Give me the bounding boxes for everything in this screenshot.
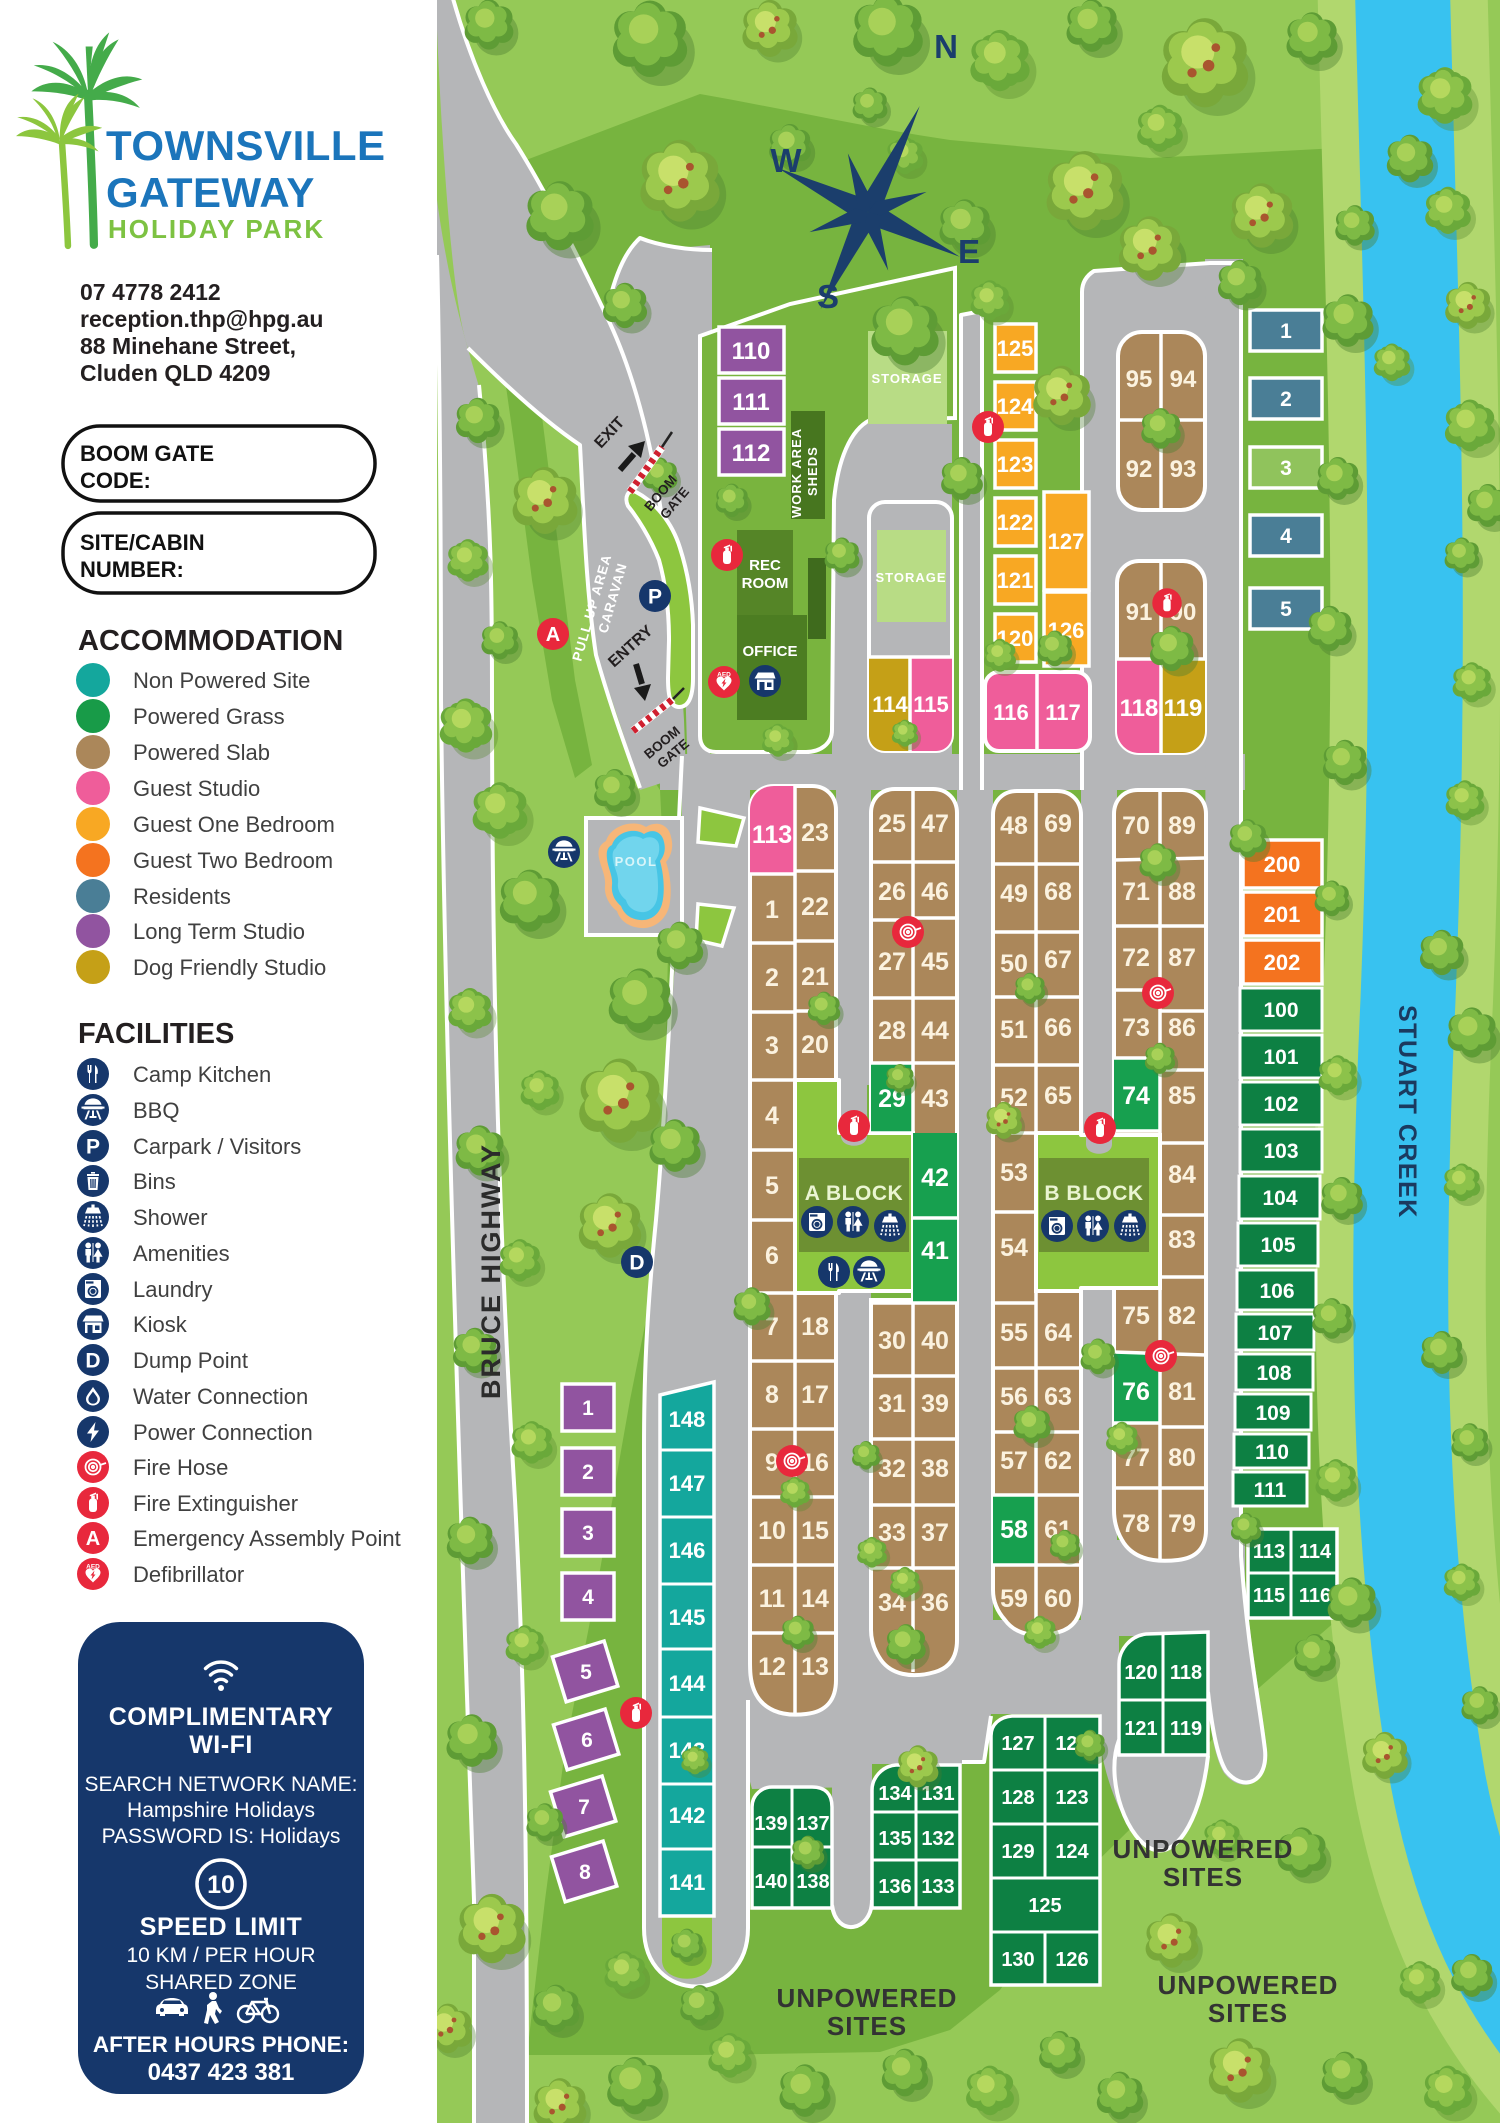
svg-text:10 KM / PER HOUR: 10 KM / PER HOUR <box>126 1944 315 1967</box>
svg-text:3: 3 <box>582 1522 594 1545</box>
svg-text:104: 104 <box>1262 1187 1297 1210</box>
svg-text:18: 18 <box>801 1313 829 1341</box>
svg-text:93: 93 <box>1170 456 1197 483</box>
svg-text:ROOM: ROOM <box>742 575 789 592</box>
svg-text:111: 111 <box>1254 1479 1287 1502</box>
svg-text:82: 82 <box>1168 1302 1196 1330</box>
svg-text:60: 60 <box>1044 1585 1072 1613</box>
svg-text:108: 108 <box>1256 1362 1291 1385</box>
svg-text:15: 15 <box>801 1517 829 1545</box>
svg-text:148: 148 <box>669 1407 706 1432</box>
svg-text:Laundry: Laundry <box>133 1277 213 1302</box>
svg-text:105: 105 <box>1260 1234 1295 1257</box>
svg-text:140: 140 <box>754 1871 787 1893</box>
svg-text:135: 135 <box>878 1828 911 1850</box>
svg-text:43: 43 <box>921 1085 949 1113</box>
svg-text:8: 8 <box>579 1861 591 1884</box>
svg-text:81: 81 <box>1168 1378 1196 1406</box>
svg-text:147: 147 <box>669 1471 706 1496</box>
svg-text:136: 136 <box>878 1876 911 1898</box>
svg-text:Hampshire Holidays: Hampshire Holidays <box>127 1799 315 1822</box>
svg-text:SITES: SITES <box>1208 1998 1288 2028</box>
svg-text:POOL: POOL <box>615 854 658 869</box>
svg-text:76: 76 <box>1122 1378 1150 1406</box>
svg-text:SITES: SITES <box>1163 1862 1243 1892</box>
svg-text:132: 132 <box>921 1828 954 1850</box>
svg-text:Fire Hose: Fire Hose <box>133 1455 228 1480</box>
svg-text:SPEED LIMIT: SPEED LIMIT <box>140 1913 302 1941</box>
svg-text:114: 114 <box>1299 1541 1332 1563</box>
svg-text:STORAGE: STORAGE <box>875 570 946 585</box>
svg-text:14: 14 <box>801 1585 829 1613</box>
svg-text:Emergency Assembly Point: Emergency Assembly Point <box>133 1526 401 1551</box>
svg-text:103: 103 <box>1263 1140 1298 1163</box>
svg-text:GATEWAY: GATEWAY <box>106 169 315 216</box>
svg-text:55: 55 <box>1000 1319 1028 1347</box>
svg-text:114: 114 <box>872 692 908 717</box>
svg-text:22: 22 <box>801 893 829 921</box>
svg-text:CODE:: CODE: <box>80 468 151 493</box>
svg-text:Kiosk: Kiosk <box>133 1312 188 1337</box>
svg-text:121: 121 <box>1124 1718 1157 1740</box>
svg-text:115: 115 <box>913 692 949 717</box>
svg-text:111: 111 <box>732 389 769 416</box>
svg-text:37: 37 <box>921 1519 949 1547</box>
svg-text:47: 47 <box>921 810 949 838</box>
svg-text:79: 79 <box>1168 1510 1196 1538</box>
svg-text:AFTER HOURS PHONE:: AFTER HOURS PHONE: <box>93 2032 349 2057</box>
svg-text:100: 100 <box>1263 999 1298 1022</box>
svg-text:Dump Point: Dump Point <box>133 1348 248 1373</box>
svg-text:63: 63 <box>1044 1383 1072 1411</box>
svg-text:49: 49 <box>1000 880 1028 908</box>
svg-text:116: 116 <box>1299 1585 1331 1607</box>
svg-text:UNPOWERED: UNPOWERED <box>777 1983 958 2013</box>
svg-text:31: 31 <box>878 1390 906 1418</box>
svg-text:127: 127 <box>1001 1733 1034 1755</box>
svg-text:UNPOWERED: UNPOWERED <box>1113 1834 1294 1864</box>
svg-text:145: 145 <box>669 1605 706 1630</box>
svg-text:Residents: Residents <box>133 884 231 909</box>
svg-text:reception.thp@hpg.au: reception.thp@hpg.au <box>80 306 323 332</box>
svg-text:4: 4 <box>1280 525 1292 548</box>
svg-text:SEARCH NETWORK NAME:: SEARCH NETWORK NAME: <box>84 1773 357 1796</box>
svg-text:Guest One Bedroom: Guest One Bedroom <box>133 812 335 837</box>
svg-text:122: 122 <box>997 510 1034 535</box>
svg-text:2: 2 <box>582 1461 594 1484</box>
svg-text:126: 126 <box>1055 1949 1088 1971</box>
svg-text:25: 25 <box>878 810 906 838</box>
svg-text:68: 68 <box>1044 878 1072 906</box>
svg-text:7: 7 <box>578 1796 590 1819</box>
svg-text:Defibrillator: Defibrillator <box>133 1562 244 1587</box>
svg-text:202: 202 <box>1264 950 1301 975</box>
svg-text:142: 142 <box>669 1803 706 1828</box>
svg-text:89: 89 <box>1168 812 1196 840</box>
svg-text:38: 38 <box>921 1455 949 1483</box>
svg-text:30: 30 <box>878 1327 906 1355</box>
svg-text:118: 118 <box>1120 695 1159 722</box>
svg-text:129: 129 <box>1001 1841 1034 1863</box>
svg-text:2: 2 <box>1280 388 1292 411</box>
svg-text:92: 92 <box>1126 456 1153 483</box>
svg-text:119: 119 <box>1164 695 1203 722</box>
svg-text:Fire Extinguisher: Fire Extinguisher <box>133 1491 298 1516</box>
svg-text:HOLIDAY PARK: HOLIDAY PARK <box>108 214 325 244</box>
svg-text:42: 42 <box>921 1164 949 1192</box>
svg-text:4: 4 <box>582 1586 594 1609</box>
svg-text:B BLOCK: B BLOCK <box>1044 1182 1143 1205</box>
svg-text:STORAGE: STORAGE <box>871 371 942 386</box>
svg-text:11: 11 <box>759 1585 786 1613</box>
svg-text:46: 46 <box>921 878 949 906</box>
svg-text:41: 41 <box>921 1237 949 1265</box>
svg-text:36: 36 <box>921 1589 949 1617</box>
svg-text:8: 8 <box>765 1381 779 1409</box>
svg-text:130: 130 <box>1001 1949 1034 1971</box>
svg-text:Long Term Studio: Long Term Studio <box>133 919 305 944</box>
svg-text:Amenities: Amenities <box>133 1241 230 1266</box>
svg-text:1: 1 <box>1280 320 1292 343</box>
svg-text:127: 127 <box>1048 529 1085 554</box>
svg-text:4: 4 <box>765 1102 779 1130</box>
svg-text:58: 58 <box>1000 1516 1028 1544</box>
svg-text:1: 1 <box>765 896 779 924</box>
svg-text:17: 17 <box>801 1381 829 1409</box>
svg-text:23: 23 <box>801 819 829 847</box>
svg-text:65: 65 <box>1044 1082 1072 1110</box>
svg-text:67: 67 <box>1044 946 1072 974</box>
svg-text:3: 3 <box>1280 457 1292 480</box>
svg-text:SITES: SITES <box>827 2011 907 2041</box>
svg-text:66: 66 <box>1044 1014 1072 1042</box>
svg-text:STUART CREEK: STUART CREEK <box>1393 1005 1421 1219</box>
svg-text:51: 51 <box>1000 1016 1028 1044</box>
svg-text:116: 116 <box>993 700 1029 725</box>
svg-text:78: 78 <box>1122 1510 1150 1538</box>
svg-text:Cluden QLD 4209: Cluden QLD 4209 <box>80 360 270 386</box>
svg-text:134: 134 <box>878 1783 912 1805</box>
svg-text:2: 2 <box>765 964 779 992</box>
svg-text:139: 139 <box>754 1813 787 1835</box>
svg-text:69: 69 <box>1044 810 1072 838</box>
svg-text:28: 28 <box>878 1017 906 1045</box>
svg-text:WI-FI: WI-FI <box>189 1731 253 1759</box>
svg-text:133: 133 <box>921 1876 954 1898</box>
svg-text:40: 40 <box>921 1327 949 1355</box>
svg-text:S: S <box>817 278 839 315</box>
svg-text:141: 141 <box>669 1870 706 1895</box>
svg-text:62: 62 <box>1044 1447 1072 1475</box>
svg-text:119: 119 <box>1170 1718 1202 1740</box>
svg-text:123: 123 <box>1055 1787 1088 1809</box>
svg-text:121: 121 <box>997 568 1034 593</box>
svg-text:95: 95 <box>1126 366 1153 393</box>
svg-text:128: 128 <box>1001 1787 1034 1809</box>
svg-text:56: 56 <box>1000 1383 1028 1411</box>
svg-text:101: 101 <box>1263 1046 1298 1069</box>
svg-text:10: 10 <box>207 1871 235 1899</box>
svg-text:200: 200 <box>1264 852 1301 877</box>
svg-text:54: 54 <box>1000 1234 1028 1262</box>
svg-text:125: 125 <box>1028 1895 1061 1917</box>
svg-text:112: 112 <box>732 440 771 467</box>
svg-text:E: E <box>958 233 980 270</box>
svg-text:A BLOCK: A BLOCK <box>805 1182 903 1205</box>
svg-text:70: 70 <box>1122 812 1150 840</box>
svg-text:TOWNSVILLE: TOWNSVILLE <box>106 122 386 169</box>
svg-text:BOOM GATE: BOOM GATE <box>80 441 214 466</box>
svg-text:Guest Studio: Guest Studio <box>133 776 260 801</box>
svg-text:91: 91 <box>1126 599 1153 626</box>
svg-text:72: 72 <box>1122 944 1150 972</box>
svg-text:Dog Friendly Studio: Dog Friendly Studio <box>133 955 326 980</box>
svg-text:137: 137 <box>796 1813 829 1835</box>
svg-text:5: 5 <box>580 1661 592 1684</box>
svg-text:COMPLIMENTARY: COMPLIMENTARY <box>109 1703 334 1731</box>
svg-text:94: 94 <box>1170 366 1197 393</box>
svg-text:3: 3 <box>765 1032 779 1060</box>
svg-text:87: 87 <box>1168 944 1196 972</box>
svg-text:50: 50 <box>1000 950 1028 978</box>
svg-text:NUMBER:: NUMBER: <box>80 557 184 582</box>
svg-text:107: 107 <box>1257 1322 1292 1345</box>
svg-text:Carpark / Visitors: Carpark / Visitors <box>133 1134 301 1159</box>
svg-text:Camp Kitchen: Camp Kitchen <box>133 1062 271 1087</box>
svg-text:39: 39 <box>921 1390 949 1418</box>
svg-text:FACILITIES: FACILITIES <box>78 1018 234 1050</box>
svg-text:SHARED ZONE: SHARED ZONE <box>145 1971 297 1994</box>
svg-text:07 4778 2412: 07 4778 2412 <box>80 279 221 305</box>
svg-text:75: 75 <box>1122 1302 1150 1330</box>
svg-text:144: 144 <box>669 1671 706 1696</box>
svg-text:84: 84 <box>1168 1161 1196 1189</box>
svg-text:Guest Two Bedroom: Guest Two Bedroom <box>133 848 333 873</box>
svg-text:BRUCE HIGHWAY: BRUCE HIGHWAY <box>476 1143 506 1399</box>
svg-text:44: 44 <box>921 1017 949 1045</box>
svg-text:0437 423 381: 0437 423 381 <box>148 2059 295 2086</box>
svg-text:48: 48 <box>1000 812 1028 840</box>
svg-text:5: 5 <box>1280 598 1292 621</box>
svg-text:5: 5 <box>765 1172 779 1200</box>
svg-text:115: 115 <box>1253 1585 1285 1607</box>
svg-text:106: 106 <box>1259 1280 1294 1303</box>
svg-text:88 Minehane Street,: 88 Minehane Street, <box>80 333 296 359</box>
svg-text:Powered Slab: Powered Slab <box>133 740 270 765</box>
svg-text:21: 21 <box>801 963 829 991</box>
svg-text:73: 73 <box>1122 1014 1150 1042</box>
svg-text:59: 59 <box>1000 1585 1028 1613</box>
svg-text:64: 64 <box>1044 1319 1072 1347</box>
svg-text:UNPOWERED: UNPOWERED <box>1158 1970 1339 2000</box>
svg-text:123: 123 <box>997 452 1034 477</box>
svg-text:Shower: Shower <box>133 1205 208 1230</box>
svg-text:Bins: Bins <box>133 1169 176 1194</box>
svg-text:REC: REC <box>749 557 781 574</box>
svg-text:110: 110 <box>1255 1441 1289 1464</box>
svg-text:80: 80 <box>1168 1444 1196 1472</box>
svg-text:N: N <box>934 28 958 65</box>
svg-text:26: 26 <box>878 878 906 906</box>
svg-text:138: 138 <box>796 1871 829 1893</box>
svg-text:85: 85 <box>1168 1082 1196 1110</box>
svg-text:BBQ: BBQ <box>133 1098 179 1123</box>
svg-text:W: W <box>770 142 802 179</box>
svg-text:57: 57 <box>1000 1447 1028 1475</box>
svg-text:124: 124 <box>997 394 1034 419</box>
svg-text:109: 109 <box>1255 1402 1290 1425</box>
svg-text:20: 20 <box>801 1031 829 1059</box>
svg-text:71: 71 <box>1122 878 1150 906</box>
svg-text:201: 201 <box>1264 902 1301 927</box>
svg-text:13: 13 <box>801 1653 829 1681</box>
svg-text:6: 6 <box>581 1729 593 1752</box>
svg-text:124: 124 <box>1055 1841 1089 1863</box>
svg-text:113: 113 <box>752 821 792 849</box>
svg-text:118: 118 <box>1170 1662 1202 1684</box>
svg-text:ACCOMMODATION: ACCOMMODATION <box>78 625 343 657</box>
svg-text:120: 120 <box>1124 1662 1157 1684</box>
svg-text:27: 27 <box>878 948 906 976</box>
svg-text:WORK AREA: WORK AREA <box>789 428 804 518</box>
svg-text:1: 1 <box>582 1397 594 1420</box>
svg-text:74: 74 <box>1122 1082 1150 1110</box>
svg-text:53: 53 <box>1000 1159 1028 1187</box>
svg-text:PASSWORD IS: Holidays: PASSWORD IS: Holidays <box>102 1825 341 1848</box>
svg-text:Non Powered Site: Non Powered Site <box>133 668 310 693</box>
svg-text:Water Connection: Water Connection <box>133 1384 308 1409</box>
svg-text:6: 6 <box>765 1242 779 1270</box>
svg-text:12: 12 <box>758 1653 786 1681</box>
svg-text:SHEDS: SHEDS <box>805 446 820 496</box>
svg-text:Powered Grass: Powered Grass <box>133 704 285 729</box>
svg-text:10: 10 <box>758 1517 786 1545</box>
svg-text:117: 117 <box>1045 700 1081 725</box>
svg-text:102: 102 <box>1263 1093 1298 1116</box>
svg-text:OFFICE: OFFICE <box>743 643 798 660</box>
svg-text:110: 110 <box>732 338 771 365</box>
svg-text:Power Connection: Power Connection <box>133 1420 313 1445</box>
svg-text:SITE/CABIN: SITE/CABIN <box>80 530 205 555</box>
svg-text:45: 45 <box>921 948 949 976</box>
svg-text:146: 146 <box>669 1538 706 1563</box>
svg-text:125: 125 <box>997 336 1034 361</box>
svg-text:86: 86 <box>1168 1014 1196 1042</box>
svg-text:83: 83 <box>1168 1226 1196 1254</box>
